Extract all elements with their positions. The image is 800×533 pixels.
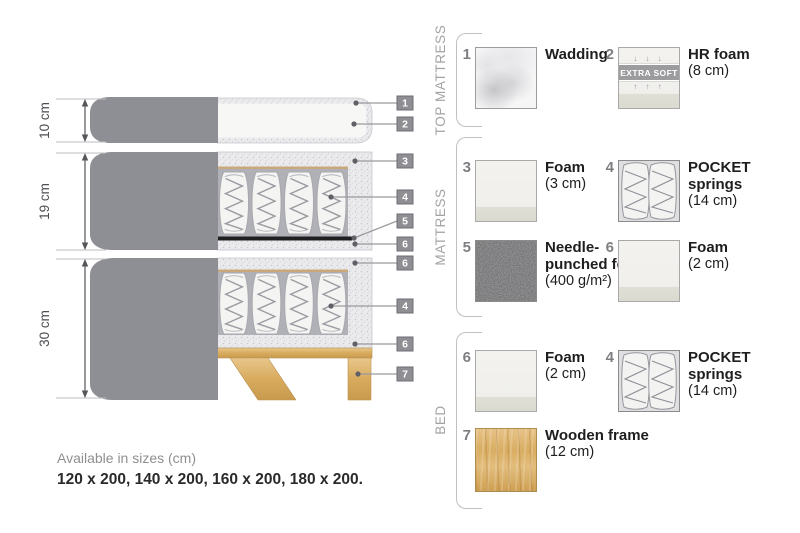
callout-number: 4 bbox=[402, 192, 408, 204]
hr-foam-swatch-icon: ↓ ↓ ↓ EXTRA SOFT ↑ ↑ ↑ bbox=[618, 47, 680, 109]
legend-item-number: 4 bbox=[600, 349, 614, 366]
legend-item-name: POCKET springs bbox=[688, 159, 780, 193]
callout-number: 2 bbox=[402, 119, 408, 131]
sizes-values: 120 x 200, 140 x 200, 160 x 200, 180 x 2… bbox=[57, 471, 363, 489]
pocket-spring-icon bbox=[220, 273, 249, 334]
legend-item-detail: (14 cm) bbox=[688, 193, 780, 210]
callout-number: 7 bbox=[402, 369, 408, 381]
pocket-spring-icon bbox=[285, 273, 314, 334]
wooden-rail bbox=[217, 348, 372, 358]
foam-swatch-icon bbox=[475, 350, 537, 412]
legend-item-number: 2 bbox=[600, 46, 614, 63]
legend-item-name: HR foam bbox=[688, 46, 780, 63]
section-label-bed: BED bbox=[433, 360, 449, 480]
bed-cover bbox=[90, 258, 218, 400]
arrows-up-icon: ↑ ↑ ↑ bbox=[633, 82, 664, 91]
wood-swatch-icon bbox=[475, 428, 537, 492]
legend-item-detail: (8 cm) bbox=[688, 63, 780, 80]
callout-number: 5 bbox=[402, 216, 408, 228]
felt-layer bbox=[217, 237, 352, 241]
legend-item-detail: (12 cm) bbox=[545, 444, 685, 461]
pocket-spring-icon bbox=[317, 172, 346, 234]
section-label-top-mattress: TOP MATTRESS bbox=[433, 20, 449, 140]
callout-number: 6 bbox=[402, 239, 408, 251]
callout-number: 6 bbox=[402, 258, 408, 270]
sizes-title: Available in sizes (cm) bbox=[57, 450, 363, 466]
legend-item-label: POCKET springs (14 cm) bbox=[688, 349, 780, 400]
legend-item-number: 7 bbox=[457, 427, 471, 444]
legend-item-label: Foam (2 cm) bbox=[688, 239, 780, 273]
legend-item-label: HR foam (8 cm) bbox=[688, 46, 780, 80]
legend-item-name: POCKET springs bbox=[688, 349, 780, 383]
legend-item-number: 6 bbox=[600, 239, 614, 256]
legend-item-number: 1 bbox=[457, 46, 471, 63]
bed-base-cross-section bbox=[90, 258, 372, 400]
callout-number: 6 bbox=[402, 339, 408, 351]
top-mattress-cross-section bbox=[90, 97, 372, 143]
mattress-cross-section bbox=[90, 152, 372, 250]
dimension-label: 19 cm bbox=[37, 183, 52, 220]
foam-swatch-icon bbox=[618, 240, 680, 302]
foam-swatch-icon bbox=[475, 160, 537, 222]
bed-tan-line bbox=[217, 270, 348, 273]
legend-item-detail: (2 cm) bbox=[688, 256, 780, 273]
legend-item-label: Wooden frame (12 cm) bbox=[545, 427, 685, 461]
hr-foam-core bbox=[217, 104, 366, 138]
callout-number: 4 bbox=[402, 301, 408, 313]
legend-item-label: POCKET springs (14 cm) bbox=[688, 159, 780, 210]
section-label-mattress: MATTRESS bbox=[433, 167, 449, 287]
legend-item-detail: (14 cm) bbox=[688, 383, 780, 400]
legend-item-number: 5 bbox=[457, 239, 471, 256]
pocket-spring-icon bbox=[284, 172, 313, 234]
extra-soft-badge: EXTRA SOFT bbox=[618, 64, 680, 81]
available-sizes: Available in sizes (cm) 120 x 200, 140 x… bbox=[57, 450, 363, 489]
felt-swatch-icon bbox=[475, 240, 537, 302]
pocket-spring-icon bbox=[252, 172, 281, 234]
mattress-cover bbox=[90, 152, 218, 250]
mattress-tan-line bbox=[217, 167, 348, 170]
legend-item-name: Foam bbox=[688, 239, 780, 256]
dimension-label: 10 cm bbox=[37, 102, 52, 139]
legend-item-number: 6 bbox=[457, 349, 471, 366]
dimension-label: 30 cm bbox=[37, 310, 52, 347]
pocket-spring-icon bbox=[252, 273, 281, 334]
wooden-slat bbox=[230, 358, 296, 400]
legend-item-name: Wooden frame bbox=[545, 427, 685, 444]
pocket-springs-swatch-icon bbox=[618, 350, 680, 412]
pocket-springs-swatch-icon bbox=[618, 160, 680, 222]
bed-construction-infographic: 10 cm 19 cm 30 cm 1 2 bbox=[0, 0, 800, 533]
callout-number: 3 bbox=[402, 156, 408, 168]
wadding-swatch-icon bbox=[475, 47, 537, 109]
legend-item-number: 4 bbox=[600, 159, 614, 176]
callout-number: 1 bbox=[402, 98, 408, 110]
arrows-down-icon: ↓ ↓ ↓ bbox=[633, 54, 664, 63]
pocket-spring-icon bbox=[219, 172, 248, 234]
top-mattress-cover bbox=[90, 97, 218, 143]
legend-item-number: 3 bbox=[457, 159, 471, 176]
wooden-leg bbox=[348, 358, 371, 400]
